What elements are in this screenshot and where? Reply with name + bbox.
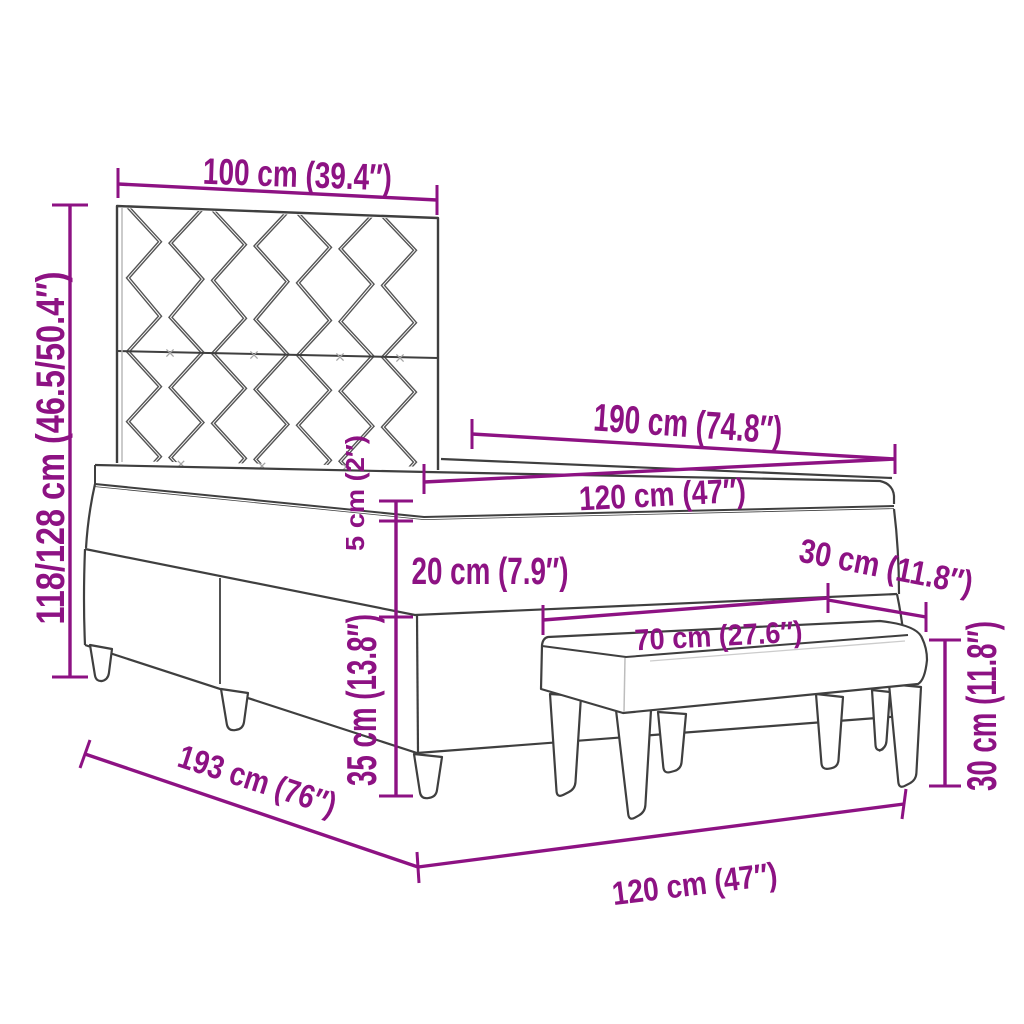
svg-text:100 cm (39.4″): 100 cm (39.4″) [202, 151, 392, 199]
svg-text:5 cm (2″): 5 cm (2″) [340, 435, 370, 551]
svg-text:30 cm (11.8″): 30 cm (11.8″) [958, 621, 1005, 791]
svg-text:118/128 cm (46.5/50.4″): 118/128 cm (46.5/50.4″) [29, 272, 73, 625]
svg-text:20 cm (7.9″): 20 cm (7.9″) [412, 551, 569, 593]
svg-text:35 cm (13.8″): 35 cm (13.8″) [338, 614, 385, 786]
